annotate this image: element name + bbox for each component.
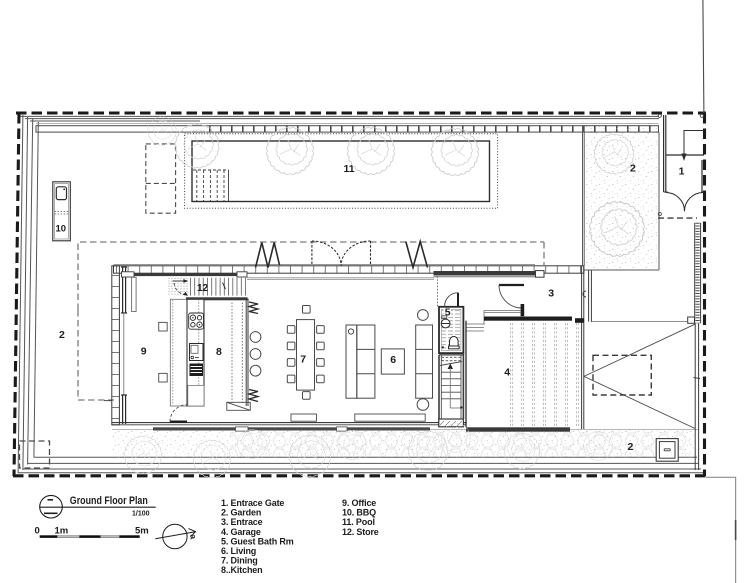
svg-text:4. Garage: 4. Garage [221,527,261,537]
svg-text:7: 7 [300,353,306,365]
svg-text:4: 4 [504,367,510,379]
svg-text:2: 2 [628,441,634,453]
svg-text:7. Dining: 7. Dining [221,556,258,566]
svg-text:12. Store: 12. Store [342,527,379,537]
svg-text:11. Pool: 11. Pool [342,517,375,527]
svg-text:1m: 1m [55,526,69,537]
svg-text:10. BBQ: 10. BBQ [342,508,376,518]
svg-text:8..Kitchen: 8..Kitchen [221,565,263,575]
svg-text:5: 5 [445,306,451,318]
svg-text:3. Entrace: 3. Entrace [221,517,263,527]
svg-text:9: 9 [141,346,147,358]
svg-text:0: 0 [35,526,40,537]
svg-text:1. Entrace Gate: 1. Entrace Gate [221,498,284,508]
svg-text:5. Guest Bath Rm: 5. Guest Bath Rm [221,536,294,546]
svg-text:2: 2 [630,163,636,175]
svg-text:1: 1 [679,166,685,178]
svg-text:6: 6 [390,354,396,366]
svg-text:11: 11 [344,163,355,175]
svg-text:1/100: 1/100 [132,511,150,518]
svg-text:Ground Floor Plan: Ground Floor Plan [70,495,148,507]
svg-text:9. Office: 9. Office [342,498,376,508]
svg-text:2: 2 [59,329,65,341]
svg-text:3: 3 [548,288,554,300]
svg-text:12: 12 [197,283,209,294]
svg-text:8: 8 [216,346,222,358]
svg-text:10: 10 [56,224,67,235]
svg-text:6. Living: 6. Living [221,546,256,556]
svg-text:5m: 5m [135,526,149,537]
svg-text:2. Garden: 2. Garden [221,508,261,518]
